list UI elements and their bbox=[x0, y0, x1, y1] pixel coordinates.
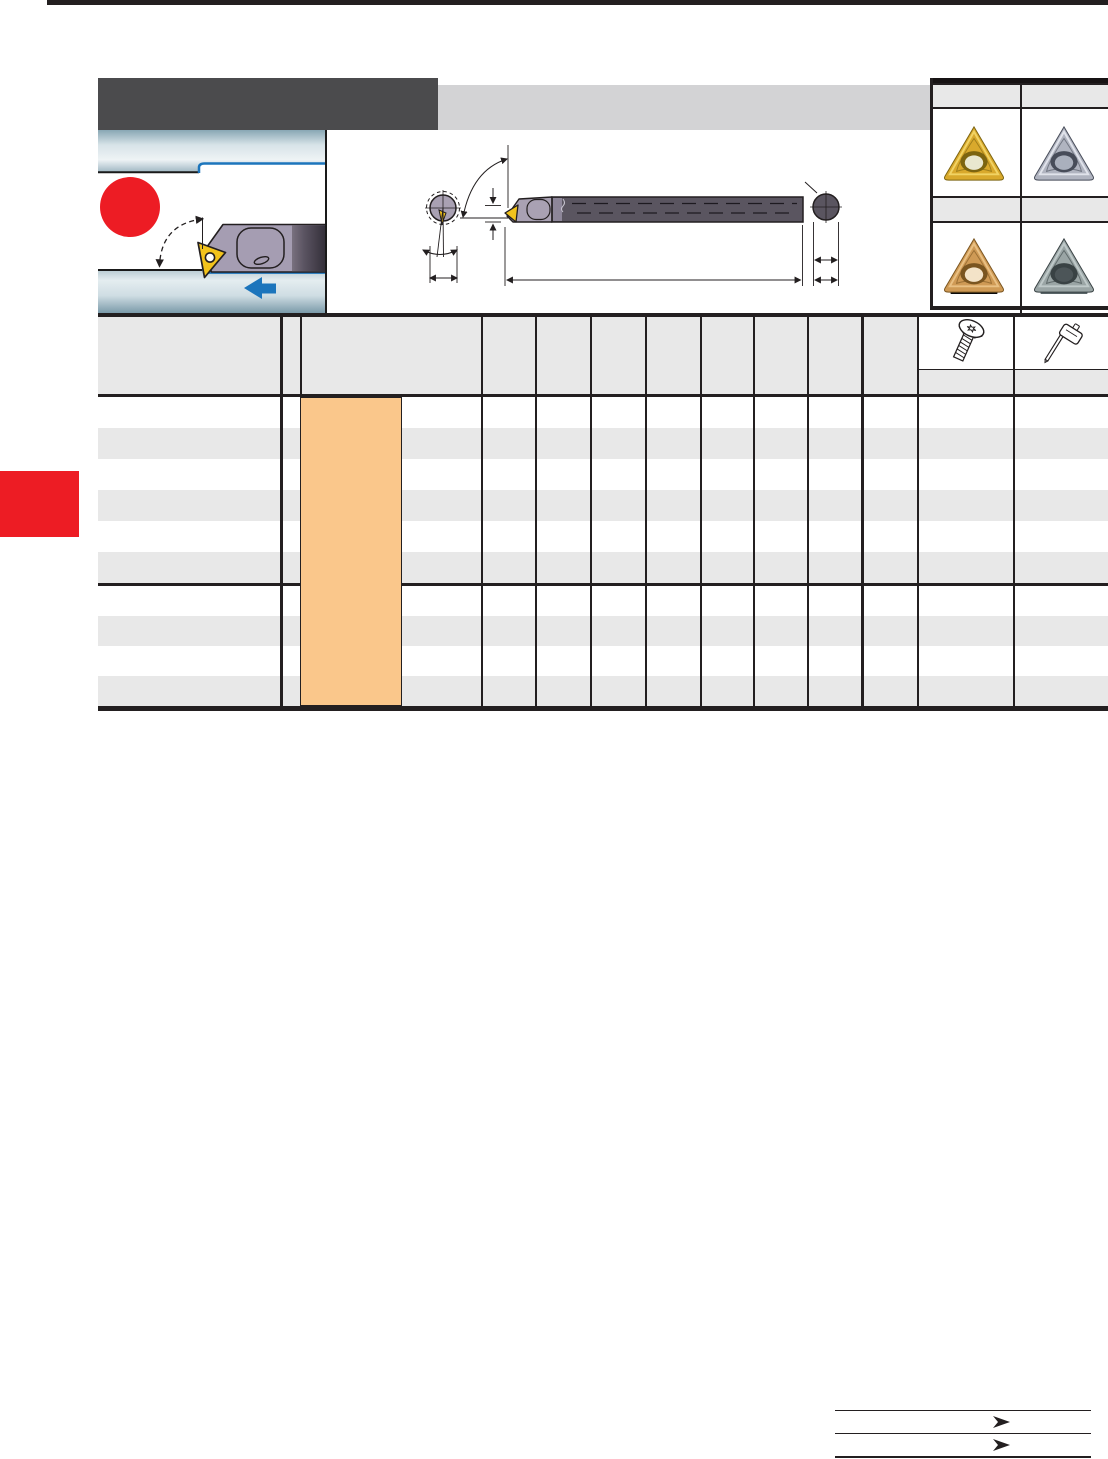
gold-coated-insert-icon bbox=[938, 123, 1010, 183]
insert-photo-row bbox=[930, 223, 1108, 306]
insert-panel-bottom-border bbox=[930, 306, 1108, 310]
page-arrow-icon bbox=[993, 1416, 1010, 1428]
table-row bbox=[98, 646, 1108, 676]
insert-photo-row bbox=[930, 109, 1108, 196]
torx-screw-icon bbox=[945, 318, 987, 368]
page-arrow-icon bbox=[993, 1439, 1010, 1451]
table-row bbox=[98, 521, 1108, 552]
insert-photo-cell bbox=[930, 223, 1018, 306]
insert-panel-left-border bbox=[930, 78, 933, 310]
table-row bbox=[98, 397, 1108, 428]
grid-line bbox=[861, 317, 864, 707]
grid-line bbox=[753, 317, 755, 707]
torx-key-icon bbox=[1038, 318, 1084, 368]
workpiece-upper bbox=[98, 130, 327, 173]
table-bottom-border bbox=[98, 706, 1108, 711]
dimension-drawing-svg bbox=[327, 130, 930, 313]
grid-line bbox=[645, 317, 647, 707]
bronze-coated-insert-icon bbox=[938, 235, 1010, 295]
grid-line bbox=[807, 317, 809, 707]
table-row bbox=[98, 428, 1108, 459]
boring-bar-photo bbox=[198, 225, 327, 278]
insert-label-band bbox=[930, 83, 1108, 109]
highlight-column bbox=[300, 397, 402, 706]
page-reference-row bbox=[835, 1411, 1091, 1434]
grid-line bbox=[481, 317, 483, 707]
grid-line bbox=[700, 317, 702, 707]
insert-photo-cell bbox=[930, 109, 1018, 196]
application-photo bbox=[98, 130, 327, 313]
grid-line bbox=[1013, 317, 1015, 707]
insert-photo-cell bbox=[1020, 109, 1108, 196]
banner-light-block bbox=[438, 85, 930, 130]
workpiece-lower bbox=[98, 270, 327, 314]
grid-line bbox=[590, 317, 592, 707]
grid-line bbox=[917, 317, 919, 707]
table-row bbox=[98, 616, 1108, 646]
page-top-rule bbox=[47, 0, 1108, 5]
section-tab bbox=[0, 471, 79, 537]
table-header-border bbox=[98, 394, 1108, 397]
table-row bbox=[98, 676, 1108, 706]
spare-wrench-cell bbox=[1015, 317, 1108, 369]
table-row bbox=[98, 586, 1108, 616]
swing-arc-arrow bbox=[160, 219, 203, 266]
insert-panel bbox=[930, 78, 1108, 310]
application-photo-illustration bbox=[98, 130, 327, 313]
insert-panel-divider bbox=[1020, 85, 1022, 313]
boring-bar-side-view bbox=[505, 197, 803, 222]
table-row bbox=[98, 459, 1108, 490]
page-reference-row bbox=[835, 1434, 1091, 1458]
spare-screw-cell bbox=[918, 317, 1013, 369]
grid-line bbox=[280, 317, 283, 707]
table-header bbox=[98, 317, 1108, 395]
table-row bbox=[98, 552, 1108, 583]
table-row bbox=[98, 490, 1108, 521]
silver-cermet-insert-icon bbox=[1028, 123, 1100, 183]
catalog-page bbox=[0, 0, 1108, 1459]
red-index-dot bbox=[100, 177, 160, 237]
catalog-table bbox=[98, 313, 1108, 711]
table-body bbox=[98, 397, 1108, 706]
gray-carbide-insert-icon bbox=[1028, 235, 1100, 295]
insert-photo-cell bbox=[1020, 223, 1108, 306]
table-top-border bbox=[98, 313, 1108, 317]
dimension-drawing bbox=[327, 130, 930, 313]
shank-end-view bbox=[805, 182, 842, 223]
grid-line bbox=[535, 317, 537, 707]
page-reference-nav bbox=[835, 1410, 1091, 1458]
banner-dark-block bbox=[98, 78, 438, 130]
insert-label-band bbox=[930, 196, 1108, 223]
bore-profile-line bbox=[199, 164, 327, 174]
